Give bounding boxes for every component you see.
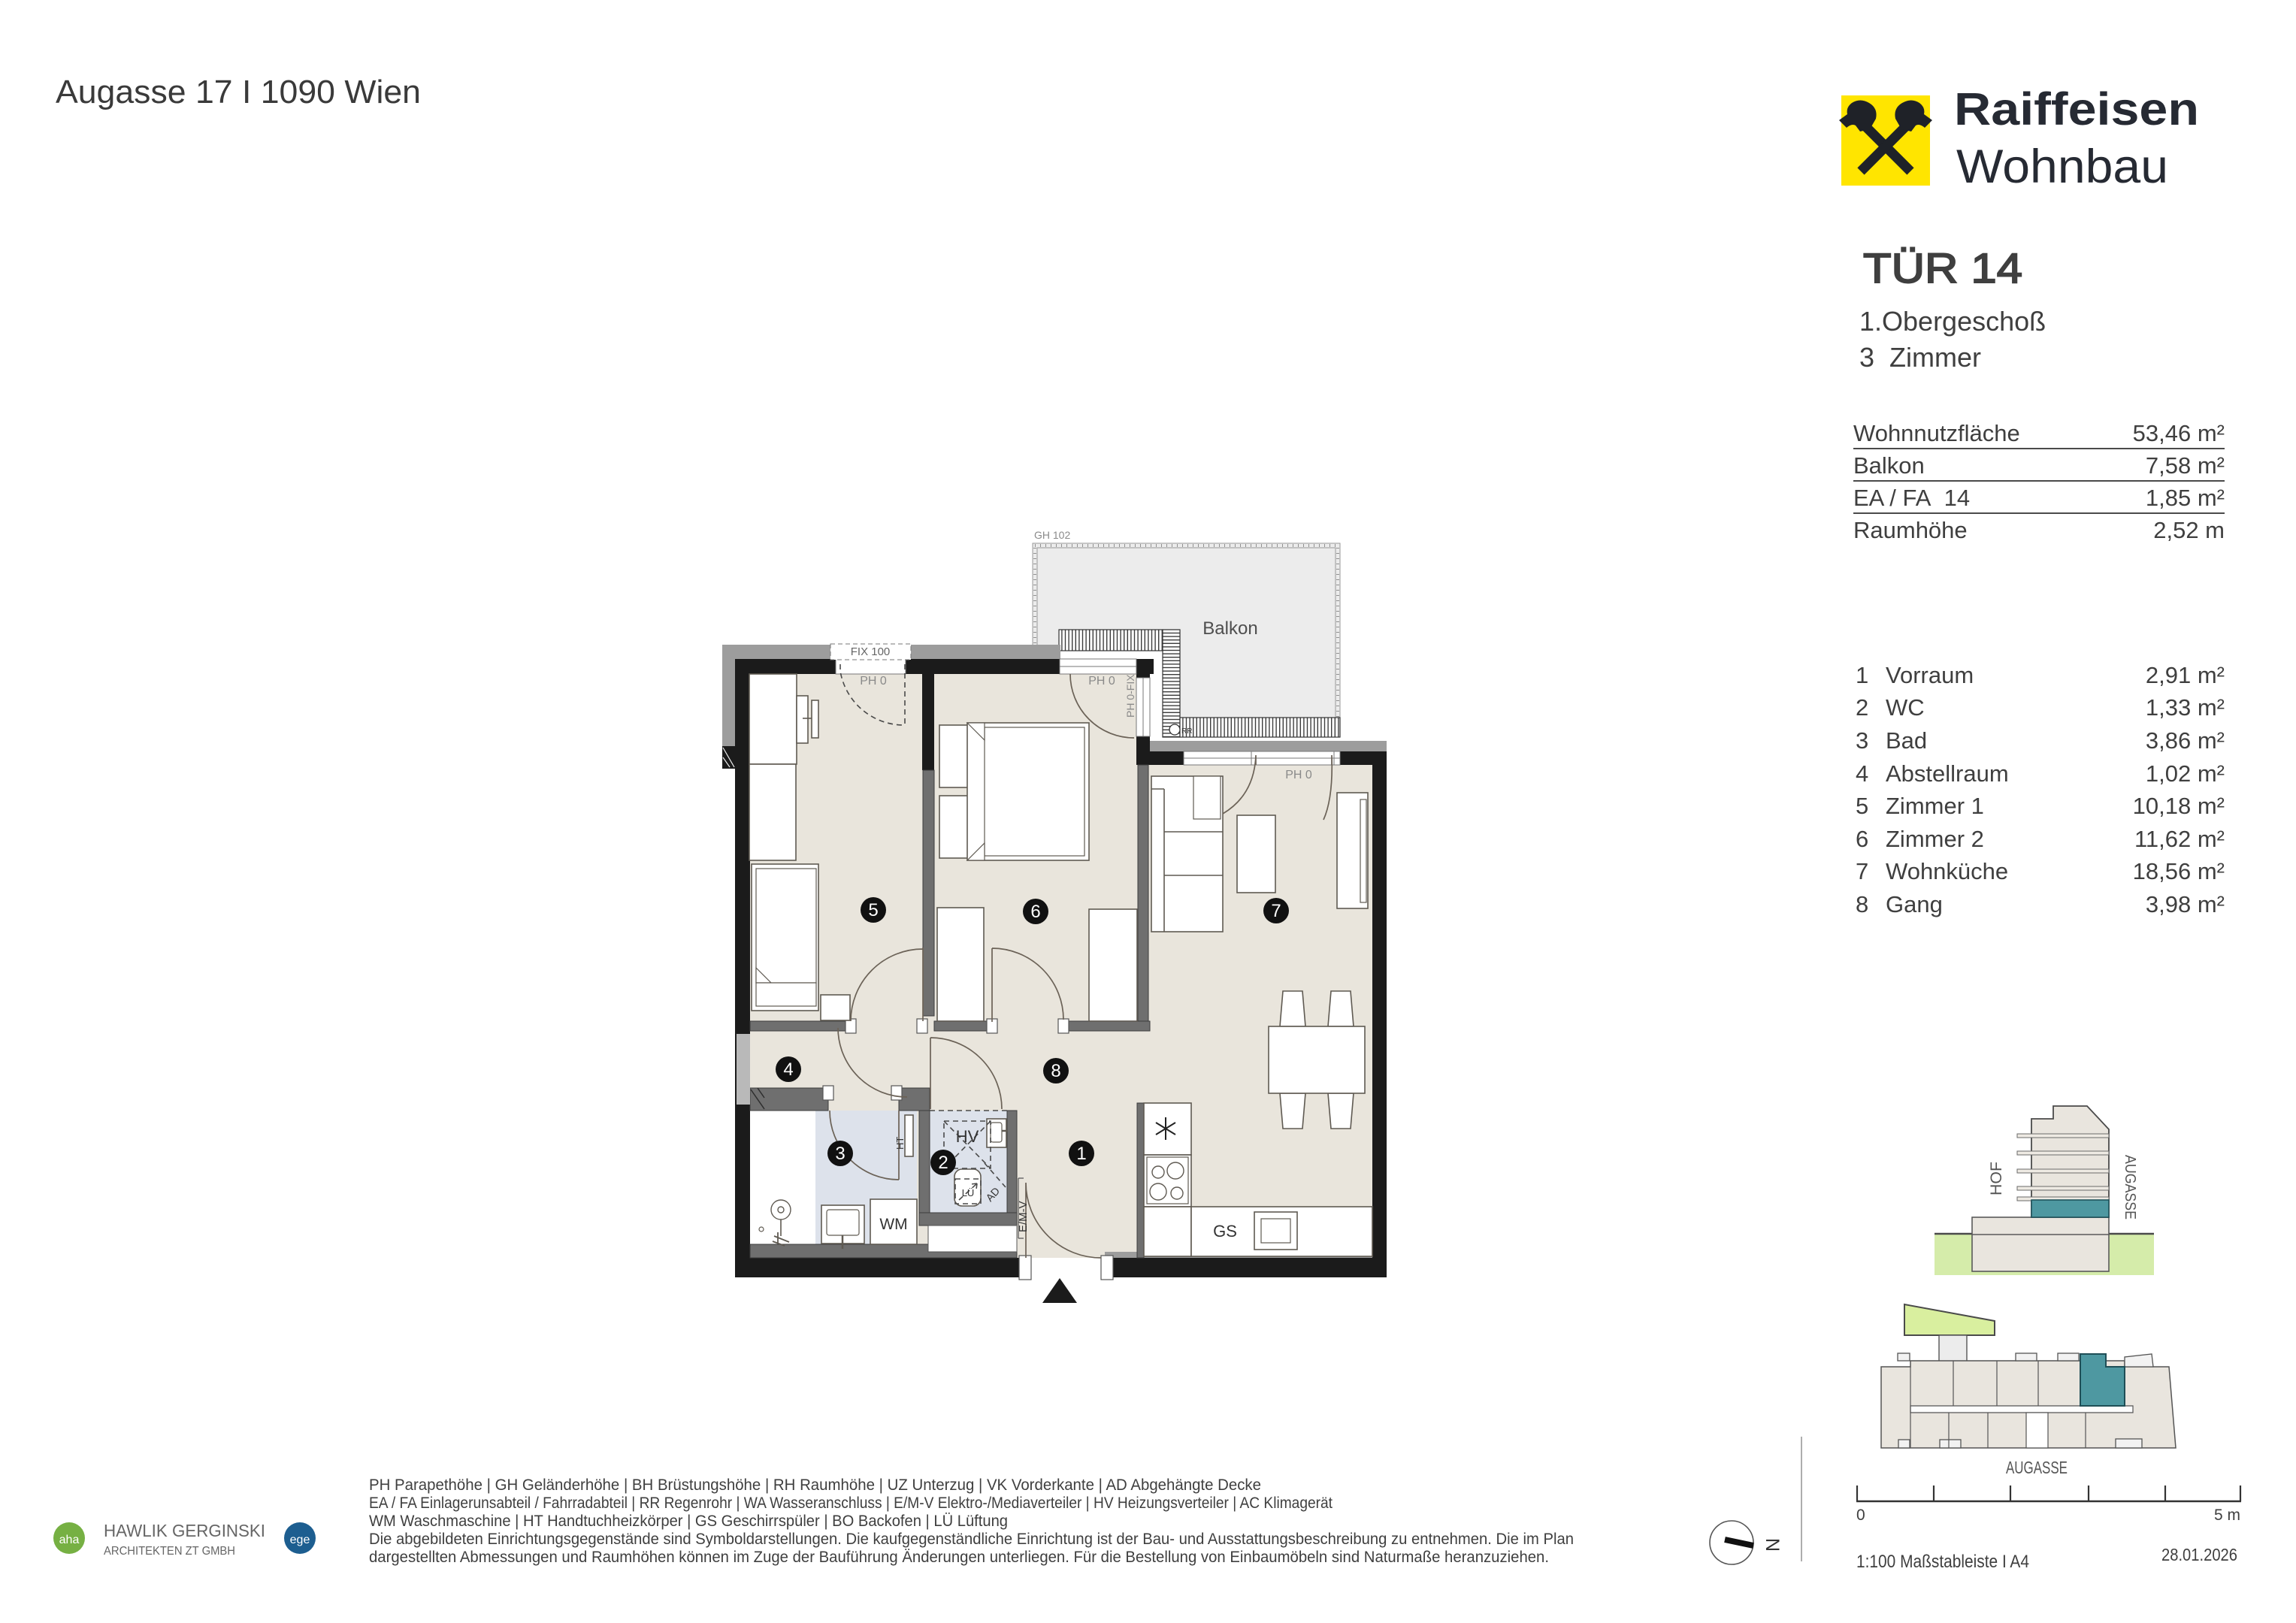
svg-text:Wohnbau: Wohnbau xyxy=(1956,141,2168,193)
svg-text:PH 0: PH 0 xyxy=(860,675,887,688)
svg-text:Zimmer 1: Zimmer 1 xyxy=(1886,793,1984,819)
svg-text:HOF: HOF xyxy=(1988,1162,2005,1195)
svg-text:Raumhöhe: Raumhöhe xyxy=(1853,517,1968,543)
svg-text:1: 1 xyxy=(1856,662,1868,688)
svg-text:2: 2 xyxy=(938,1153,948,1173)
svg-text:aha: aha xyxy=(59,1534,80,1546)
svg-text:HT: HT xyxy=(894,1137,906,1150)
svg-text:dargestellten Abmessungen und: dargestellten Abmessungen und Raumhöhen … xyxy=(369,1549,1549,1566)
svg-text:2,52 m: 2,52 m xyxy=(2153,517,2225,543)
svg-text:LÜ: LÜ xyxy=(962,1187,975,1198)
svg-text:ARCHITEKTEN ZT GMBH: ARCHITEKTEN ZT GMBH xyxy=(104,1545,235,1558)
svg-text:11,62 m²: 11,62 m² xyxy=(2134,826,2225,852)
svg-text:1.Obergeschoß: 1.Obergeschoß xyxy=(1859,306,2046,337)
svg-text:Wohnküche: Wohnküche xyxy=(1886,858,2008,884)
svg-text:FIX 100: FIX 100 xyxy=(851,645,891,658)
svg-text:GS: GS xyxy=(1213,1222,1237,1241)
svg-text:AUGASSE: AUGASSE xyxy=(2006,1458,2068,1477)
svg-text:PH 0: PH 0 xyxy=(1285,769,1312,781)
svg-text:28.01.2026: 28.01.2026 xyxy=(2161,1545,2237,1564)
svg-text:0: 0 xyxy=(1856,1507,1865,1524)
svg-text:WM Waschmaschine | HT Handtuch: WM Waschmaschine | HT Handtuchheizkörper… xyxy=(369,1513,1008,1530)
svg-text:WC: WC xyxy=(1886,694,1925,721)
svg-text:1,33 m²: 1,33 m² xyxy=(2146,694,2225,721)
svg-text:3 Zimmer: 3 Zimmer xyxy=(1859,342,1981,373)
svg-text:6: 6 xyxy=(1030,902,1040,922)
svg-text:Balkon: Balkon xyxy=(1202,618,1257,639)
svg-text:8: 8 xyxy=(1856,891,1868,917)
svg-text:GH 102: GH 102 xyxy=(1034,529,1070,541)
svg-text:N: N xyxy=(1762,1538,1783,1552)
svg-text:TÜR 14: TÜR 14 xyxy=(1863,244,2022,292)
svg-text:7: 7 xyxy=(1856,858,1868,884)
svg-text:4: 4 xyxy=(1856,760,1868,787)
svg-text:HAWLIK GERGINSKI: HAWLIK GERGINSKI xyxy=(104,1521,265,1540)
svg-text:5 m: 5 m xyxy=(2214,1507,2240,1524)
svg-text:RR: RR xyxy=(1181,727,1192,736)
svg-text:1:100 Maßstableiste I A4: 1:100 Maßstableiste I A4 xyxy=(1856,1552,2029,1572)
svg-text:Zimmer 2: Zimmer 2 xyxy=(1886,826,1984,852)
svg-text:2,91 m²: 2,91 m² xyxy=(2146,662,2225,688)
svg-text:1: 1 xyxy=(1076,1144,1086,1164)
svg-text:1,85 m²: 1,85 m² xyxy=(2146,485,2225,511)
svg-text:PH 0: PH 0 xyxy=(1088,675,1115,688)
svg-text:3,98 m²: 3,98 m² xyxy=(2146,891,2225,917)
svg-text:4: 4 xyxy=(783,1059,793,1080)
svg-text:5: 5 xyxy=(868,900,878,920)
svg-text:Die abgebildeten Einrichtungsg: Die abgebildeten Einrichtungsgegenstände… xyxy=(369,1531,1574,1548)
svg-text:5: 5 xyxy=(1856,793,1868,819)
svg-text:7,58 m²: 7,58 m² xyxy=(2146,452,2225,479)
svg-text:Raiffeisen: Raiffeisen xyxy=(1954,83,2199,134)
svg-text:Gang: Gang xyxy=(1886,891,1943,917)
svg-text:PH Parapethöhe | GH Geländerhö: PH Parapethöhe | GH Geländerhöhe | BH Br… xyxy=(369,1476,1261,1494)
svg-text:10,18 m²: 10,18 m² xyxy=(2133,793,2225,819)
svg-text:EA / FA 14: EA / FA 14 xyxy=(1853,485,1970,511)
svg-text:3: 3 xyxy=(1856,727,1868,754)
svg-text:Augasse 17 I 1090 Wien: Augasse 17 I 1090 Wien xyxy=(56,74,421,110)
svg-text:6: 6 xyxy=(1856,826,1868,852)
svg-text:HV: HV xyxy=(956,1127,979,1146)
svg-text:2: 2 xyxy=(1856,694,1868,721)
svg-text:Vorraum: Vorraum xyxy=(1886,662,1974,688)
svg-text:EA / FA Einlagerunsabteil / Fa: EA / FA Einlagerunsabteil / Fahrradabtei… xyxy=(369,1495,1333,1512)
svg-text:18,56 m²: 18,56 m² xyxy=(2133,858,2225,884)
svg-text:Abstellraum: Abstellraum xyxy=(1886,760,2009,787)
svg-text:ege: ege xyxy=(290,1534,310,1546)
svg-text:1,02 m²: 1,02 m² xyxy=(2146,760,2225,787)
svg-text:3,86 m²: 3,86 m² xyxy=(2146,727,2225,754)
svg-text:PH 0-FIX: PH 0-FIX xyxy=(1124,674,1136,718)
svg-text:Wohnnutzfläche: Wohnnutzfläche xyxy=(1853,420,2020,446)
svg-text:53,46 m²: 53,46 m² xyxy=(2133,420,2225,446)
svg-text:8: 8 xyxy=(1051,1061,1060,1081)
svg-text:AUGASSE: AUGASSE xyxy=(2122,1155,2138,1220)
svg-text:WM: WM xyxy=(879,1216,907,1233)
svg-text:3: 3 xyxy=(835,1144,845,1164)
svg-text:7: 7 xyxy=(1271,901,1281,921)
svg-text:Bad: Bad xyxy=(1886,727,1927,754)
svg-text:Balkon: Balkon xyxy=(1853,452,1925,479)
